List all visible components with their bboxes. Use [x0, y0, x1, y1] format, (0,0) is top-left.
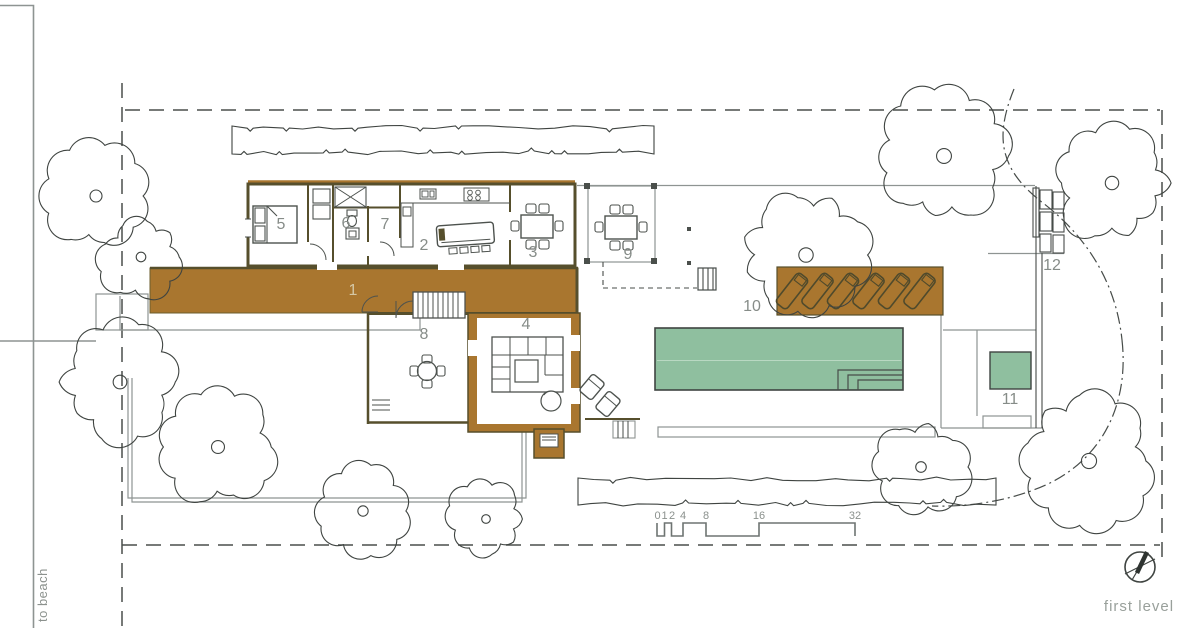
scale-bar: 0 1 2 4 8 16 32 — [654, 510, 861, 536]
tree-trunk — [482, 515, 491, 524]
trellis-panel — [1040, 190, 1052, 209]
stairs-icon — [413, 292, 465, 318]
trellis-panel — [1040, 234, 1051, 252]
room-number-5: 5 — [277, 216, 286, 233]
room-number-2: 2 — [420, 237, 429, 254]
courtyard-steps — [372, 400, 390, 410]
deck-1 — [150, 268, 578, 313]
north-compass-icon — [1125, 552, 1155, 582]
site-boundary — [0, 6, 1162, 628]
pool-water — [655, 328, 903, 390]
table — [521, 215, 553, 238]
scale-tick: 4 — [680, 510, 686, 522]
site-edge-line — [0, 6, 34, 628]
bed-icon — [253, 206, 297, 243]
room-number-6: 6 — [342, 215, 351, 232]
trellis-panel — [1053, 235, 1064, 253]
tree-canopy-icon — [445, 479, 522, 558]
level-caption: first level — [1104, 598, 1174, 615]
room-number-11: 11 — [1002, 391, 1019, 408]
fireplace-icon — [534, 429, 564, 458]
tree-canopy-icon — [1019, 389, 1154, 534]
table — [605, 216, 637, 239]
deck-corridor — [150, 268, 578, 320]
tree-trunk — [90, 190, 102, 202]
lounger-line — [588, 379, 600, 389]
patio-lounger-icon — [595, 390, 621, 417]
pergola-post — [687, 261, 691, 265]
chair — [422, 380, 432, 388]
spa-step — [983, 416, 1031, 428]
tree-canopy-icon — [159, 386, 278, 503]
floor-plan-page: 0 1 2 4 8 16 32 1 2 3 4 5 6 7 8 9 10 11 … — [0, 0, 1200, 628]
tree-trunk — [799, 248, 813, 262]
wall-opening — [317, 262, 337, 270]
island-counter — [436, 222, 494, 247]
house-lower-block — [368, 313, 640, 458]
room-number-12: 12 — [1043, 257, 1061, 274]
room-number-9: 9 — [624, 246, 633, 263]
swimming-pool — [655, 328, 903, 390]
patio-dashed-edge — [603, 262, 697, 288]
window — [245, 219, 251, 237]
pool-deck — [687, 227, 943, 315]
tree-canopy-icon — [879, 84, 1013, 215]
patio-lounger-icon — [579, 373, 605, 400]
garden-steps — [613, 421, 635, 438]
house-upper-wing — [245, 182, 575, 271]
chair — [610, 241, 620, 250]
deck-step-treads — [703, 268, 713, 290]
hedge-outline — [578, 477, 996, 506]
spa — [990, 352, 1031, 389]
outdoor-table-icon — [595, 205, 647, 250]
garden-step-treads — [618, 421, 628, 438]
chair — [437, 366, 445, 376]
room-number-3: 3 — [529, 244, 538, 261]
room-number-1: 1 — [349, 282, 358, 299]
room-number-7: 7 — [381, 216, 390, 233]
post — [584, 183, 590, 189]
floor-plan-drawing: 0 1 2 4 8 16 32 1 2 3 4 5 6 7 8 9 10 11 … — [0, 0, 1200, 628]
tree-trunk — [212, 441, 225, 454]
room-number-8: 8 — [420, 326, 429, 343]
tree-trunk — [916, 462, 927, 473]
chair — [410, 366, 418, 376]
wall-opening — [438, 262, 464, 270]
chair — [623, 205, 633, 214]
window — [571, 335, 580, 351]
scale-tick: 8 — [703, 510, 709, 522]
trellis-structure — [1033, 186, 1064, 428]
room-number-4: 4 — [522, 316, 531, 333]
to-beach-label: to beach — [35, 568, 50, 622]
pergola-post — [687, 227, 691, 231]
vegetation — [39, 84, 1171, 559]
tree-trunk — [136, 252, 146, 262]
window — [571, 388, 580, 404]
north-needle — [1137, 552, 1147, 573]
tree-trunk — [358, 506, 368, 516]
room-number-10: 10 — [743, 298, 761, 315]
trellis-panel — [1053, 192, 1064, 209]
walkway — [658, 427, 935, 437]
tree-trunk — [113, 375, 127, 389]
post — [584, 258, 590, 264]
tree-canopy-icon — [1056, 121, 1171, 238]
scale-tick: 32 — [849, 510, 861, 522]
courtyard-table-icon — [410, 355, 445, 388]
firebox — [540, 434, 558, 447]
scale-bar-line — [657, 523, 855, 536]
scale-tick: 16 — [753, 510, 765, 522]
lounger-line — [604, 396, 616, 406]
coffee-table-icon — [515, 360, 538, 382]
garden-wall — [132, 378, 522, 502]
tree-trunk — [937, 149, 952, 164]
scale-tick: 1 — [661, 510, 667, 522]
tree-trunk — [1105, 176, 1118, 189]
tree-canopy-icon — [39, 138, 149, 246]
chair — [595, 222, 603, 232]
tree-trunk — [1081, 453, 1096, 468]
outdoor-dining-room — [584, 183, 697, 288]
lounger — [579, 373, 605, 400]
scale-tick: 2 — [669, 510, 675, 522]
post — [651, 183, 657, 189]
chair — [610, 205, 620, 214]
island-sink — [438, 228, 445, 240]
chair — [639, 222, 647, 232]
window — [468, 340, 477, 356]
tree-canopy-icon — [95, 216, 182, 299]
shrub-curve — [1003, 89, 1122, 340]
scale-tick: 0 — [654, 510, 660, 522]
hedge-outline — [232, 126, 654, 155]
post — [651, 258, 657, 264]
trellis-panel — [1040, 212, 1052, 231]
lounger — [595, 390, 621, 417]
round-table — [418, 362, 437, 381]
